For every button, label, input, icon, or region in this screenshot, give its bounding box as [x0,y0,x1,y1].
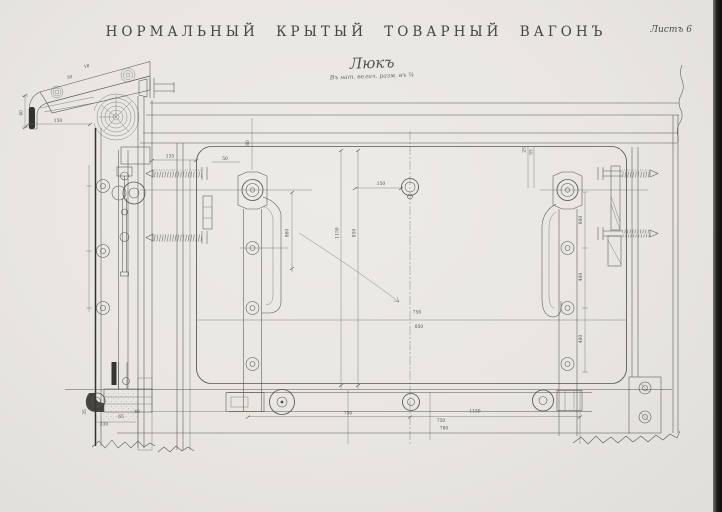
dim-label: 800 [579,216,584,225]
dim-label: 150 [54,119,63,124]
dim-label: 18 [83,64,90,70]
swing-arc [299,233,399,302]
dim-label: 150 [377,182,386,187]
dim-label: 750 [437,419,446,424]
page-edge-shadow [713,0,722,512]
dim-label: 65 [118,415,124,420]
dim-label: 40 [20,110,25,116]
dim-label: 760 [440,427,449,432]
dim-label: 30 [66,75,73,81]
fascia-band [140,65,683,143]
break-line-jagged [158,446,194,452]
hinge-left [238,172,399,412]
dim-label: 25 [523,147,528,153]
technical-drawing: 860 1150 850 800 400 750 850 750 1150 75… [0,0,722,512]
break-line-jagged [92,440,155,448]
dim-label: 1150 [336,227,341,238]
scanned-drawing-page: НОРМАЛЬНЫЙ КРЫТЫЙ ТОВАРНЫЙ ВАГОНЪ Листъ … [0,0,722,512]
dim-label: 35 [83,409,88,415]
dim-label: 330 [100,423,109,428]
center-eyelet [355,131,419,446]
dim-label: 135 [166,155,175,160]
hatch-panel-plan-view [65,115,678,450]
dim-label: 860 [286,229,291,238]
bottom-bar [226,390,592,415]
dim-label: 750 [344,412,353,417]
wall-section-left [92,96,194,452]
dim-label: 750 [413,311,422,316]
dim-label: 1150 [469,410,480,415]
dim-label: 55 [530,149,535,155]
dim-label: 850 [353,229,358,238]
wood-grain-rings [93,94,139,140]
roof-bolt [139,78,174,98]
dim-label: 400 [579,273,584,282]
latch-handle [542,204,561,317]
dimension-lines: 860 1150 850 800 400 750 850 750 1150 75… [20,64,649,444]
dim-label: 400 [579,335,584,344]
dim-label: 80 [246,140,251,146]
dim-label: 40 [134,410,140,415]
hinge-right [542,172,582,436]
dim-label: 50 [222,157,228,162]
corner-panel-bottom-right [573,377,680,444]
dim-label: 850 [415,325,424,330]
